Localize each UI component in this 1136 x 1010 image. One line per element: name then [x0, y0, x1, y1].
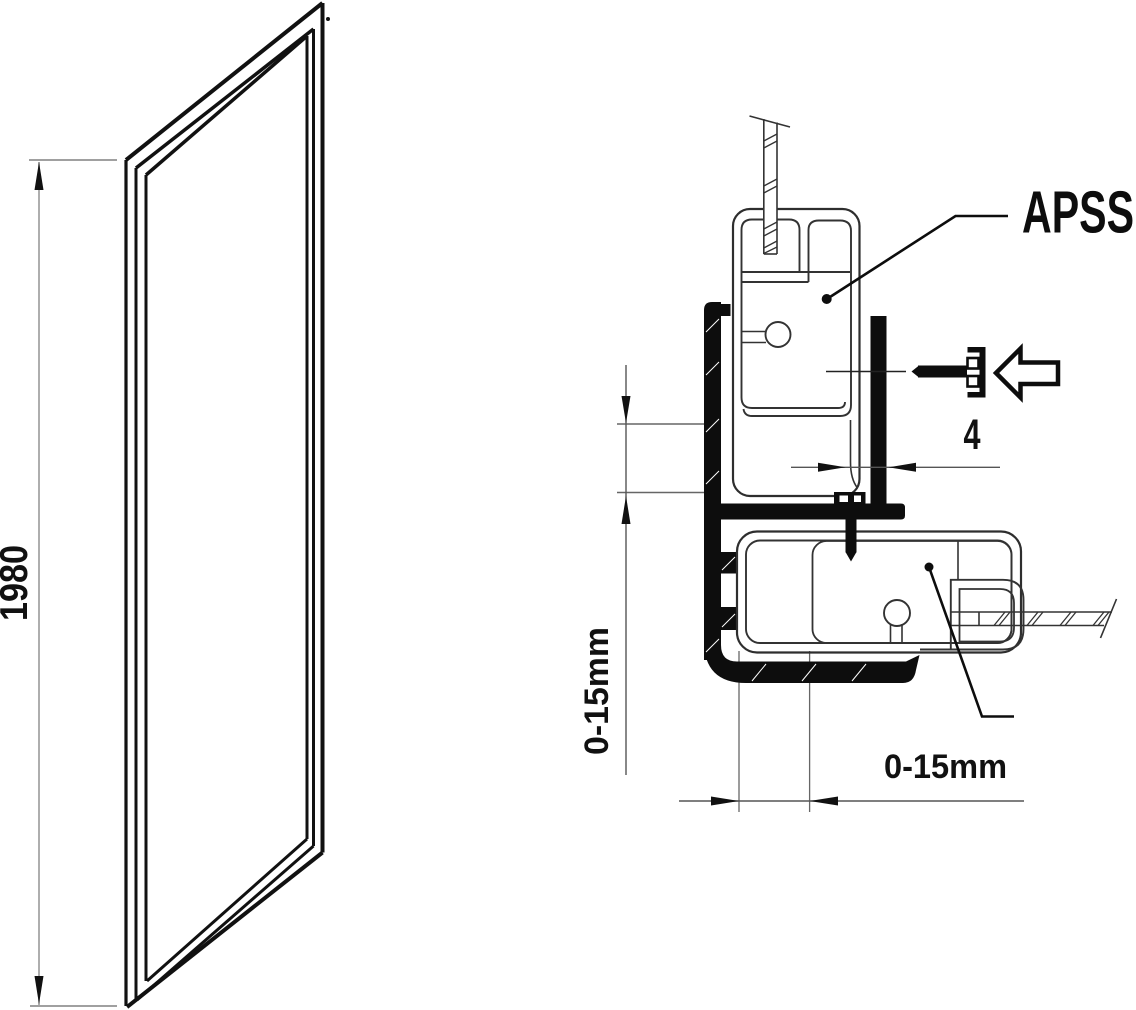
- svg-text:0-15mm: 0-15mm: [578, 627, 616, 755]
- svg-text:0-15mm: 0-15mm: [884, 748, 1007, 786]
- svg-text:APSS: APSS: [1022, 180, 1134, 246]
- svg-text:4: 4: [964, 411, 981, 459]
- svg-text:1980: 1980: [0, 545, 36, 621]
